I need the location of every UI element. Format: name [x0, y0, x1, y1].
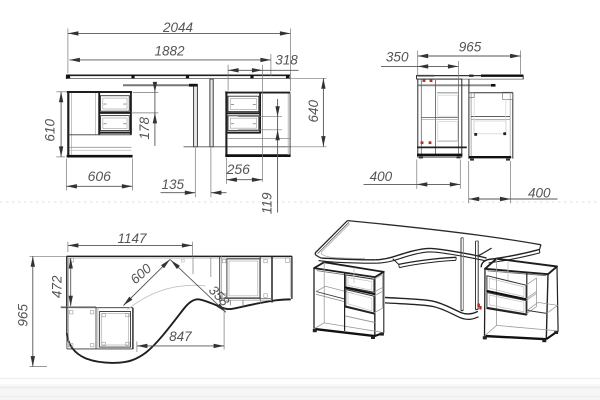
svg-text:2044: 2044 — [162, 20, 193, 35]
svg-text:1882: 1882 — [154, 43, 185, 58]
svg-text:135: 135 — [162, 177, 185, 192]
svg-text:178: 178 — [137, 117, 152, 140]
svg-text:965: 965 — [15, 304, 30, 327]
svg-text:640: 640 — [306, 99, 321, 122]
svg-text:256: 256 — [226, 161, 251, 177]
svg-text:965: 965 — [459, 40, 482, 55]
svg-text:847: 847 — [169, 329, 192, 344]
svg-text:610: 610 — [43, 119, 58, 142]
svg-text:318: 318 — [275, 53, 298, 68]
svg-text:472: 472 — [49, 275, 64, 298]
svg-text:1147: 1147 — [117, 231, 147, 246]
svg-text:400: 400 — [528, 186, 551, 201]
svg-text:350: 350 — [386, 49, 409, 64]
svg-text:400: 400 — [370, 169, 393, 184]
svg-text:606: 606 — [88, 168, 112, 184]
svg-text:119: 119 — [260, 192, 275, 214]
